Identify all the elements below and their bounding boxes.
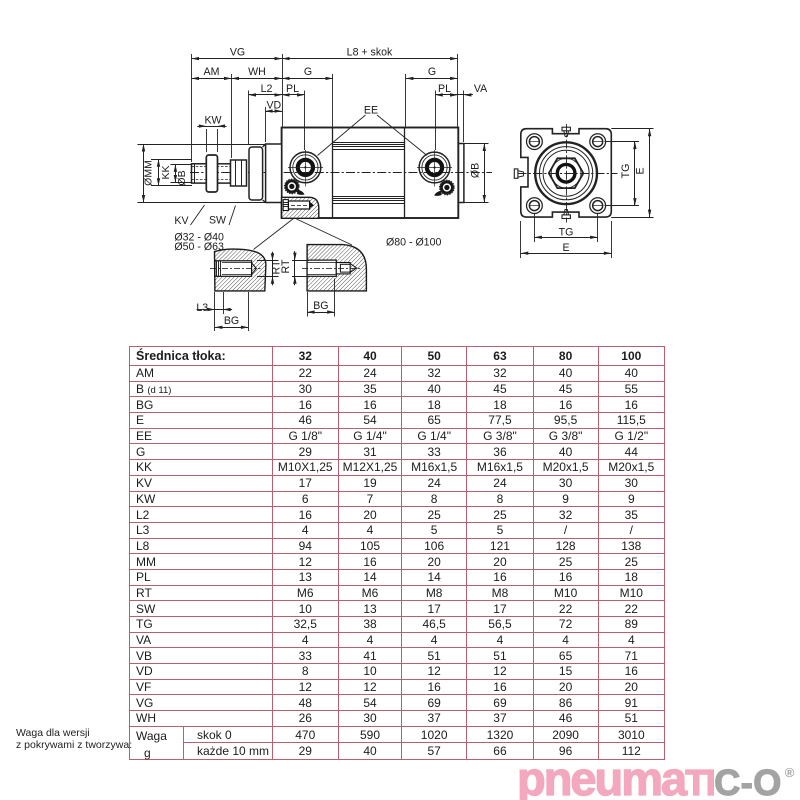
svg-text:ØMM: ØMM [143, 160, 155, 186]
svg-text:PL: PL [286, 83, 299, 95]
svg-text:L3: L3 [196, 302, 208, 314]
svg-text:EE: EE [364, 105, 378, 117]
svg-text:KK: KK [160, 165, 172, 179]
svg-text:KW: KW [204, 114, 221, 126]
svg-text:VA: VA [474, 83, 488, 95]
svg-text:VD: VD [266, 99, 281, 111]
svg-text:WH: WH [248, 66, 266, 78]
svg-text:PL: PL [438, 83, 451, 95]
svg-text:E: E [562, 242, 569, 254]
svg-text:RT: RT [280, 259, 292, 273]
svg-text:VG: VG [230, 46, 245, 58]
svg-text:G: G [428, 66, 436, 78]
svg-text:E: E [635, 167, 647, 174]
svg-text:ØB: ØB [469, 163, 481, 178]
svg-text:G: G [304, 66, 312, 78]
svg-text:Ø80 - Ø100: Ø80 - Ø100 [386, 236, 441, 248]
svg-text:L2: L2 [261, 83, 273, 95]
svg-text:BG: BG [313, 300, 328, 312]
svg-text:AM: AM [204, 66, 220, 78]
svg-text:KV: KV [174, 215, 189, 227]
svg-text:SW: SW [209, 215, 226, 227]
svg-text:BG: BG [224, 315, 239, 327]
svg-text:TG: TG [559, 226, 574, 238]
svg-text:ØB: ØB [176, 170, 188, 185]
svg-text:TG: TG [620, 164, 632, 179]
svg-text:L8 + skok: L8 + skok [347, 46, 393, 58]
